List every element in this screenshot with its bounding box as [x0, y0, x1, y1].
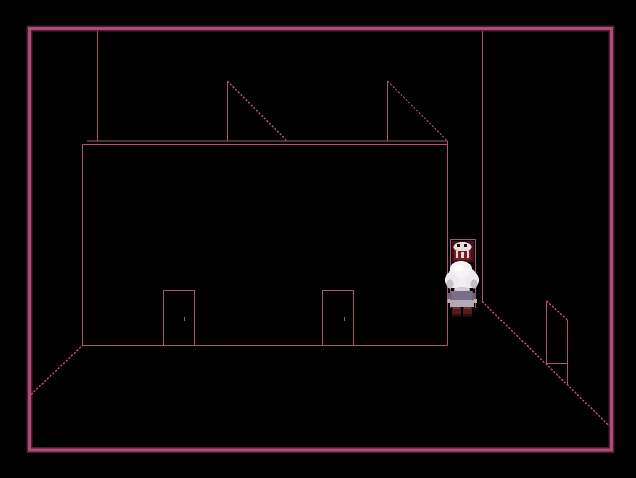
player-sole-left — [452, 314, 461, 317]
doorway-figure-hair — [454, 242, 472, 252]
player-shoe-highlight-left — [453, 307, 460, 309]
player-torso — [451, 291, 473, 301]
doorway-figure-eye-left — [457, 244, 460, 247]
scene-svg — [0, 0, 636, 478]
doorway-art — [452, 241, 474, 262]
player-shoe-highlight-right — [464, 307, 471, 309]
player-sole-right — [463, 314, 472, 317]
player-hair-shade-left — [447, 280, 454, 289]
doorway-drip-3 — [467, 251, 469, 258]
player-hair-highlight — [454, 265, 465, 272]
game-window[interactable] — [0, 0, 636, 478]
scene-background — [0, 0, 636, 478]
doorway-drip-1 — [456, 251, 458, 258]
doorway-figure-eye-right — [464, 244, 467, 247]
doorway-drip-2 — [461, 252, 464, 258]
player-skirt — [450, 300, 474, 307]
player-hand-right — [474, 299, 477, 303]
player-hair-shade-right — [471, 280, 478, 289]
